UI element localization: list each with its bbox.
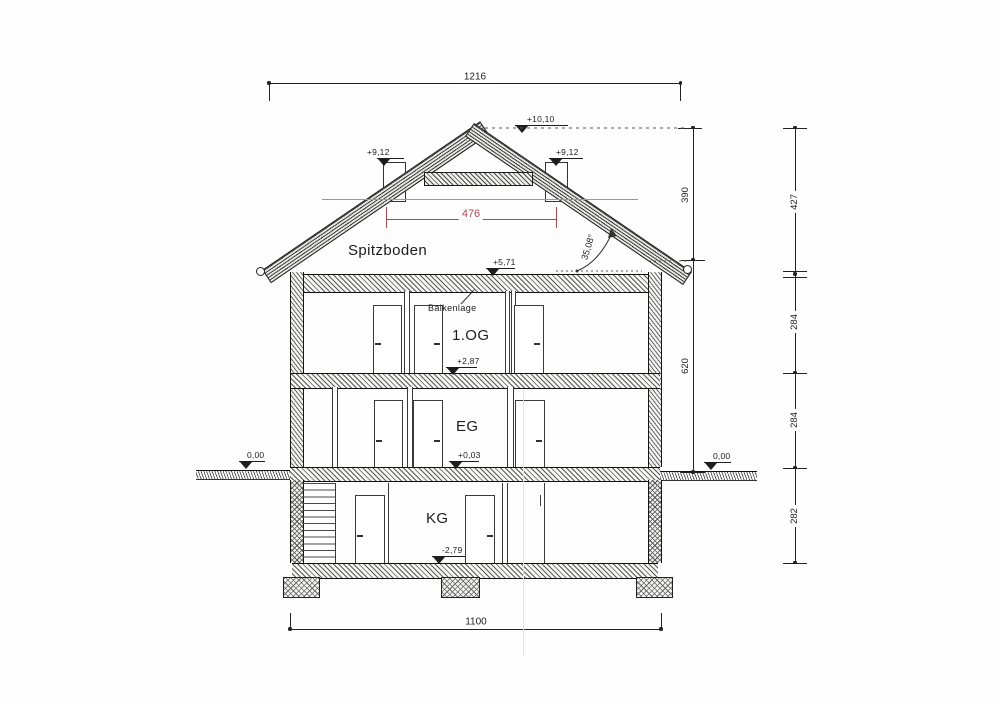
dim-chain-inner-dot-bottom <box>691 470 694 473</box>
annotation-overlay <box>0 0 1000 706</box>
room-label-kg: KG <box>426 510 448 527</box>
door-eg-1 <box>374 400 403 468</box>
chain-label-390: 390 <box>681 184 691 206</box>
dim-chain-outer-dot-1 <box>793 126 796 129</box>
dimension-attic-width-value: 476 <box>459 208 483 220</box>
dim-chain-inner-line <box>693 128 694 473</box>
level-marker-chimney-left: +9,12 <box>377 144 404 159</box>
balkenlage-label: Balkenlage <box>428 303 477 313</box>
scan-fold-line <box>523 390 524 655</box>
door-og1-3 <box>514 305 544 374</box>
dim-chain-inner-dot-mid <box>691 258 694 261</box>
grade-line-left <box>196 470 295 480</box>
level-og1-floor-triangle-icon <box>447 368 459 375</box>
door-og1-2-handle <box>434 343 440 345</box>
dimension-bottom-line <box>290 629 662 630</box>
attic-level-line <box>322 199 638 200</box>
footing-left <box>283 577 320 598</box>
level-kg-floor-value: -2,79 <box>442 545 462 555</box>
door-eg-3-handle <box>536 440 542 442</box>
level-chimney-left-triangle-icon <box>378 159 390 166</box>
door-eg-1-handle <box>376 440 382 442</box>
chain-label-284a: 284 <box>790 311 800 333</box>
level-chimney-right-value: +9,12 <box>556 147 579 157</box>
dimension-top-tick-left <box>269 83 270 101</box>
dimension-top-dot-left <box>267 81 270 84</box>
level-ridge-value: +10,10 <box>527 114 554 124</box>
level-grade-left-value: 0,00 <box>247 450 264 460</box>
dim-chain-inner-dot-top <box>691 126 694 129</box>
dimension-attic-width-tick-right <box>556 207 557 228</box>
gutter-right-icon <box>683 265 692 274</box>
dim-chain-outer-dot-3 <box>793 371 796 374</box>
chain-label-282: 282 <box>790 505 800 527</box>
door-kg-2-handle <box>487 535 493 537</box>
level-marker-attic-floor: +5,71 <box>486 254 515 269</box>
dimension-bottom-value: 1100 <box>462 617 490 628</box>
level-grade-right-value: 0,00 <box>713 451 730 461</box>
level-marker-ridge: +10,10 <box>515 111 568 126</box>
chain-label-620: 620 <box>681 355 691 377</box>
dimension-bottom-dot-right <box>659 627 662 630</box>
partition-kg-line-c <box>544 483 545 563</box>
partition-kg-line-a <box>388 483 389 563</box>
door-kg-2 <box>465 495 495 564</box>
attic-floor-slab <box>295 274 655 293</box>
room-label-og1: 1.OG <box>452 327 489 344</box>
door-eg-2 <box>413 400 443 468</box>
floor-slab-eg <box>290 467 660 482</box>
floor-slab-og1 <box>291 373 660 389</box>
dimension-top-tick-right <box>680 83 681 101</box>
level-marker-og1-floor: +2,87 <box>446 353 477 368</box>
dimension-top-value: 1216 <box>461 72 489 83</box>
door-og1-2 <box>414 305 443 374</box>
partition-kg-frame-dash <box>540 495 541 506</box>
room-label-eg: EG <box>456 418 478 435</box>
dimension-bottom-dot-left <box>288 627 291 630</box>
room-label-spitzboden: Spitzboden <box>348 242 427 259</box>
basement-wall-right <box>648 480 662 563</box>
dimension-attic-width-tick-left <box>386 207 387 228</box>
exterior-wall-left <box>290 272 304 467</box>
footing-right <box>636 577 673 598</box>
level-ridge-triangle-icon <box>516 126 528 133</box>
level-marker-chimney-right: +9,12 <box>549 144 583 159</box>
roof-angle-label: 35,08° <box>579 233 596 261</box>
dim-chain-outer-dot-5 <box>793 561 796 564</box>
level-marker-kg-floor: -2,79 <box>432 542 465 557</box>
level-grade-left-triangle-icon <box>240 462 252 469</box>
footing-center <box>441 577 480 598</box>
collar-beam <box>424 172 533 186</box>
partition-og1-b1 <box>505 291 510 373</box>
level-eg-floor-triangle-icon <box>450 462 462 469</box>
gutter-left-icon <box>256 267 265 276</box>
door-kg-1-handle <box>357 535 363 537</box>
grade-line-right <box>656 471 757 481</box>
partition-eg-a <box>332 387 338 467</box>
door-kg-1 <box>355 495 385 564</box>
door-eg-2-handle <box>434 440 440 442</box>
dimension-top-line <box>269 83 681 84</box>
level-marker-grade-right: 0,00 <box>704 448 731 463</box>
chain-label-284b: 284 <box>790 409 800 431</box>
level-attic-floor-triangle-icon <box>487 269 499 276</box>
level-kg-floor-triangle-icon <box>433 557 445 564</box>
door-og1-3-handle <box>534 343 540 345</box>
door-og1-1-handle <box>375 343 381 345</box>
exterior-wall-right <box>648 272 662 467</box>
dim-chain-outer-tick-2b <box>783 277 807 278</box>
dim-chain-inner-tick-top <box>678 128 702 129</box>
dim-chain-outer-dot-4 <box>793 466 796 469</box>
level-og1-floor-value: +2,87 <box>457 356 480 366</box>
partition-kg-b <box>502 483 508 563</box>
level-attic-floor-value: +5,71 <box>493 257 516 267</box>
dimension-top-dot-right <box>679 81 682 84</box>
door-og1-1 <box>373 305 402 374</box>
dim-chain-outer-dot-2 <box>793 272 796 275</box>
level-eg-floor-value: +0,03 <box>458 450 481 460</box>
level-chimney-right-triangle-icon <box>550 159 562 166</box>
section-drawing: 1216 476 Spitzboden Balkenlage 1.OG EG <box>0 0 1000 706</box>
basement-stairs <box>302 483 336 563</box>
partition-eg-c <box>507 387 514 467</box>
roof-angle-vertex-dot <box>576 270 579 273</box>
partition-og1-a <box>404 291 410 373</box>
level-marker-grade-left: 0,00 <box>239 447 265 462</box>
level-chimney-left-value: +9,12 <box>367 147 390 157</box>
level-grade-right-triangle-icon <box>705 463 717 470</box>
chain-label-427: 427 <box>790 191 800 213</box>
door-eg-3 <box>515 400 545 468</box>
level-marker-eg-floor: +0,03 <box>449 447 479 462</box>
